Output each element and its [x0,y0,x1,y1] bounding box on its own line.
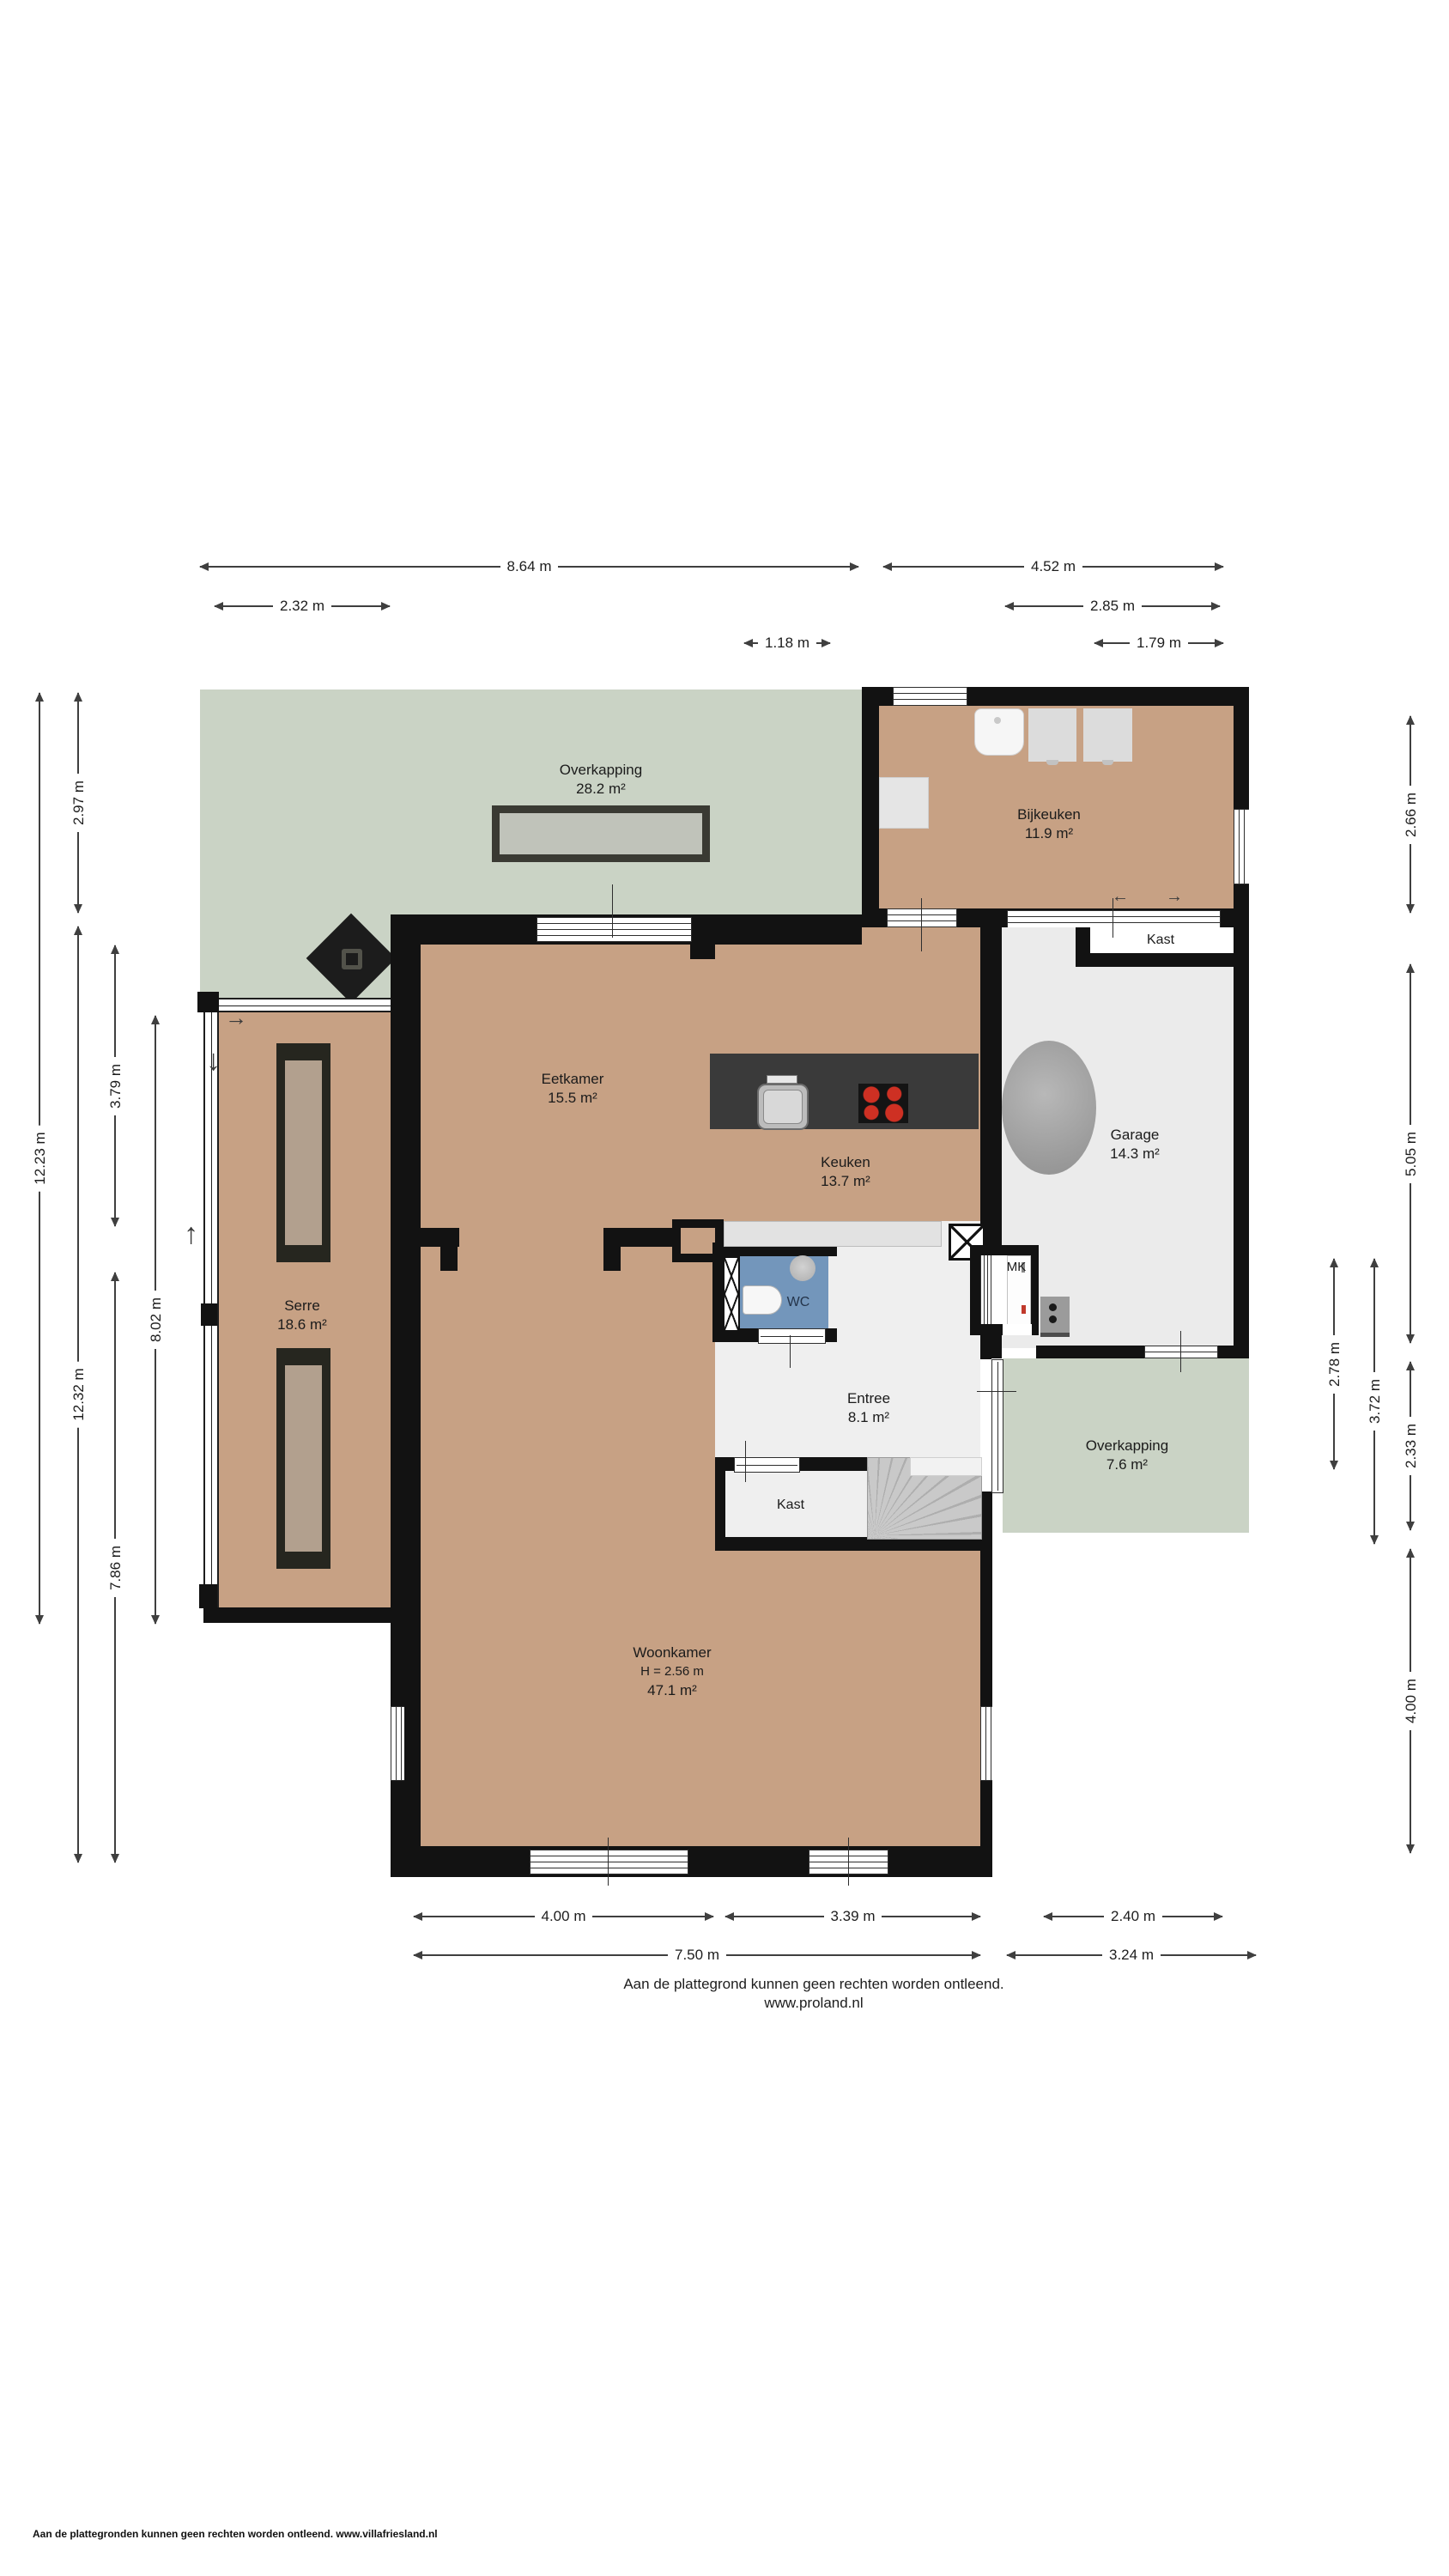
dimension: 3.79 m [114,945,116,1226]
room-label-serre: Serre 18.6 m² [277,1297,327,1334]
dimension: 2.66 m [1410,716,1411,913]
sliding-door-arrow-left-icon: ← [1112,888,1129,905]
room-label-mk: MK [1007,1258,1027,1277]
washing-machine [1028,708,1076,762]
heat-pump-dot [1049,1303,1057,1311]
reference-tick [977,1391,1016,1392]
reference-tick [608,1838,609,1886]
dimension: 2.97 m [77,693,79,913]
window [1234,809,1249,884]
room-name: Garage [1110,1126,1160,1145]
room-name: Eetkamer [542,1070,604,1089]
room-area: 13.7 m² [821,1172,870,1191]
window [1144,1346,1218,1358]
dimension: 4.00 m [1410,1549,1411,1853]
room-label-eetkamer: Eetkamer 15.5 m² [542,1070,604,1108]
room-label-bijkeuken: Bijkeuken 11.9 m² [1017,805,1081,843]
room-name: WC [787,1293,810,1312]
bijkeuken-sink-drain [994,717,1001,724]
dimension: 1.79 m [1094,642,1223,644]
room-name: Overkapping [1086,1437,1168,1455]
window [893,687,967,706]
floorplan-canvas: ← → → ↓ ↑ Overkapping 28.2 m² Bijkeuken … [0,0,1449,2576]
reference-tick [848,1838,849,1886]
column-shaft-core [681,1228,715,1254]
serre-mid-post [201,1303,217,1326]
dimension: 1.18 m [744,642,830,644]
wall [862,687,879,912]
wall [203,1607,421,1623]
reference-tick [790,1335,791,1368]
dryer [1083,708,1132,762]
wall [391,945,421,1623]
disclaimer: Aan de plattegrond kunnen geen rechten w… [513,1975,1114,2013]
disclaimer-url: www.proland.nl [513,1994,1114,2013]
wall [421,1228,459,1247]
kitchen-faucet [767,1075,797,1084]
wall [603,1247,621,1271]
room-label-overkapping-top: Overkapping 28.2 m² [560,761,642,799]
dimension: 3.39 m [725,1916,980,1917]
wall [1234,687,1249,1358]
room-area: 15.5 m² [542,1089,604,1108]
kitchen-island [710,1054,979,1129]
room-name: Overkapping [560,761,642,780]
cooktop [858,1084,908,1123]
sliding-door-arrow-right-icon: → [1166,888,1183,905]
room-name: Kast [777,1496,804,1515]
dimension: 2.78 m [1333,1259,1335,1469]
serre-glass-wall-left [203,998,219,1607]
planter-bench [276,1348,330,1569]
dimension: 12.23 m [39,693,40,1624]
kitchen-counter [724,1221,942,1247]
room-label-overkapping-right: Overkapping 7.6 m² [1086,1437,1168,1474]
window [530,1850,688,1874]
dimension: 5.05 m [1410,964,1411,1343]
entree-passage-door [734,1457,800,1473]
reference-tick [612,884,613,938]
wc-shaft-strip [723,1256,740,1332]
bijkeuken-cabinet [879,777,929,829]
serre-corner-post [197,992,219,1012]
door-swing-arrow-up-icon: ↑ [184,1219,198,1249]
entree-outside-door [991,1359,1003,1493]
room-name: Entree [847,1389,890,1408]
wall [1076,953,1249,967]
wall [980,1334,991,1359]
room-name: Keuken [821,1153,870,1172]
footer-disclaimer: Aan de plattegronden kunnen geen rechten… [33,2528,438,2540]
dimension: 8.02 m [155,1016,156,1624]
window [1007,910,1221,927]
room-label-woonkamer: Woonkamer H = 2.56 m 47.1 m² [633,1643,711,1700]
kitchen-sink [757,1084,809,1130]
mk-door [980,1255,991,1324]
planter-bench [276,1043,330,1262]
room-label-kast-bottom: Kast [777,1496,804,1515]
wall [712,1242,723,1342]
room-area: 7.6 m² [1086,1455,1168,1474]
wc-basin [790,1255,815,1281]
room-label-keuken: Keuken 13.7 m² [821,1153,870,1191]
room-name: MK [1007,1258,1027,1277]
window [980,1706,992,1781]
stair-landing [910,1457,982,1476]
room-area: 11.9 m² [1017,824,1081,843]
dimension: 4.52 m [883,566,1223,568]
door-swing-arrow-right-icon: → [225,1006,247,1029]
wall [440,1247,458,1271]
room-area: 47.1 m² [633,1681,711,1700]
skylight [492,805,710,862]
room-name: Kast [1147,931,1174,950]
mk-niche [1003,1324,1032,1335]
room-label-kast-top: Kast [1147,931,1174,950]
reference-tick [745,1441,746,1482]
dimension: 3.24 m [1007,1954,1256,1956]
room-ceiling-height: H = 2.56 m [633,1662,711,1681]
room-label-wc: WC [787,1293,810,1312]
wall [391,1846,991,1877]
boiler-indicator-red [1022,1305,1026,1314]
toilet [743,1285,782,1315]
dimension: 12.32 m [77,927,79,1862]
disclaimer-line1: Aan de plattegrond kunnen geen rechten w… [513,1975,1114,1994]
dimension: 8.64 m [200,566,858,568]
heat-pump-dot [1049,1315,1057,1323]
window [391,1706,404,1781]
dimension: 2.40 m [1044,1916,1222,1917]
dimension: 7.50 m [414,1954,980,1956]
room-name: Bijkeuken [1017,805,1081,824]
bijkeuken-sink [974,708,1024,756]
tree-canopy [1002,1041,1096,1175]
serre-corner-post [199,1584,217,1608]
dimension: 4.00 m [414,1916,713,1917]
window [887,908,957,927]
room-area: 8.1 m² [847,1408,890,1427]
wall [603,1228,672,1247]
dimension: 2.33 m [1410,1362,1411,1530]
room-name: Serre [277,1297,327,1315]
door-swing-arrow-down-icon: ↓ [206,1046,221,1075]
room-area: 18.6 m² [277,1315,327,1334]
room-name: Woonkamer [633,1643,711,1662]
wc-door [758,1328,826,1344]
room-label-garage: Garage 14.3 m² [1110,1126,1160,1163]
wall [690,945,715,959]
dimension: 3.72 m [1373,1259,1375,1544]
dimension: 7.86 m [114,1273,116,1862]
window [537,917,692,942]
dimension: 2.85 m [1005,605,1220,607]
room-area: 14.3 m² [1110,1145,1160,1163]
room-label-entree: Entree 8.1 m² [847,1389,890,1427]
dimension: 2.32 m [215,605,390,607]
reference-tick [1180,1331,1181,1372]
corner-diamond-ring [342,949,362,969]
reference-tick [921,898,922,951]
room-area: 28.2 m² [560,780,642,799]
